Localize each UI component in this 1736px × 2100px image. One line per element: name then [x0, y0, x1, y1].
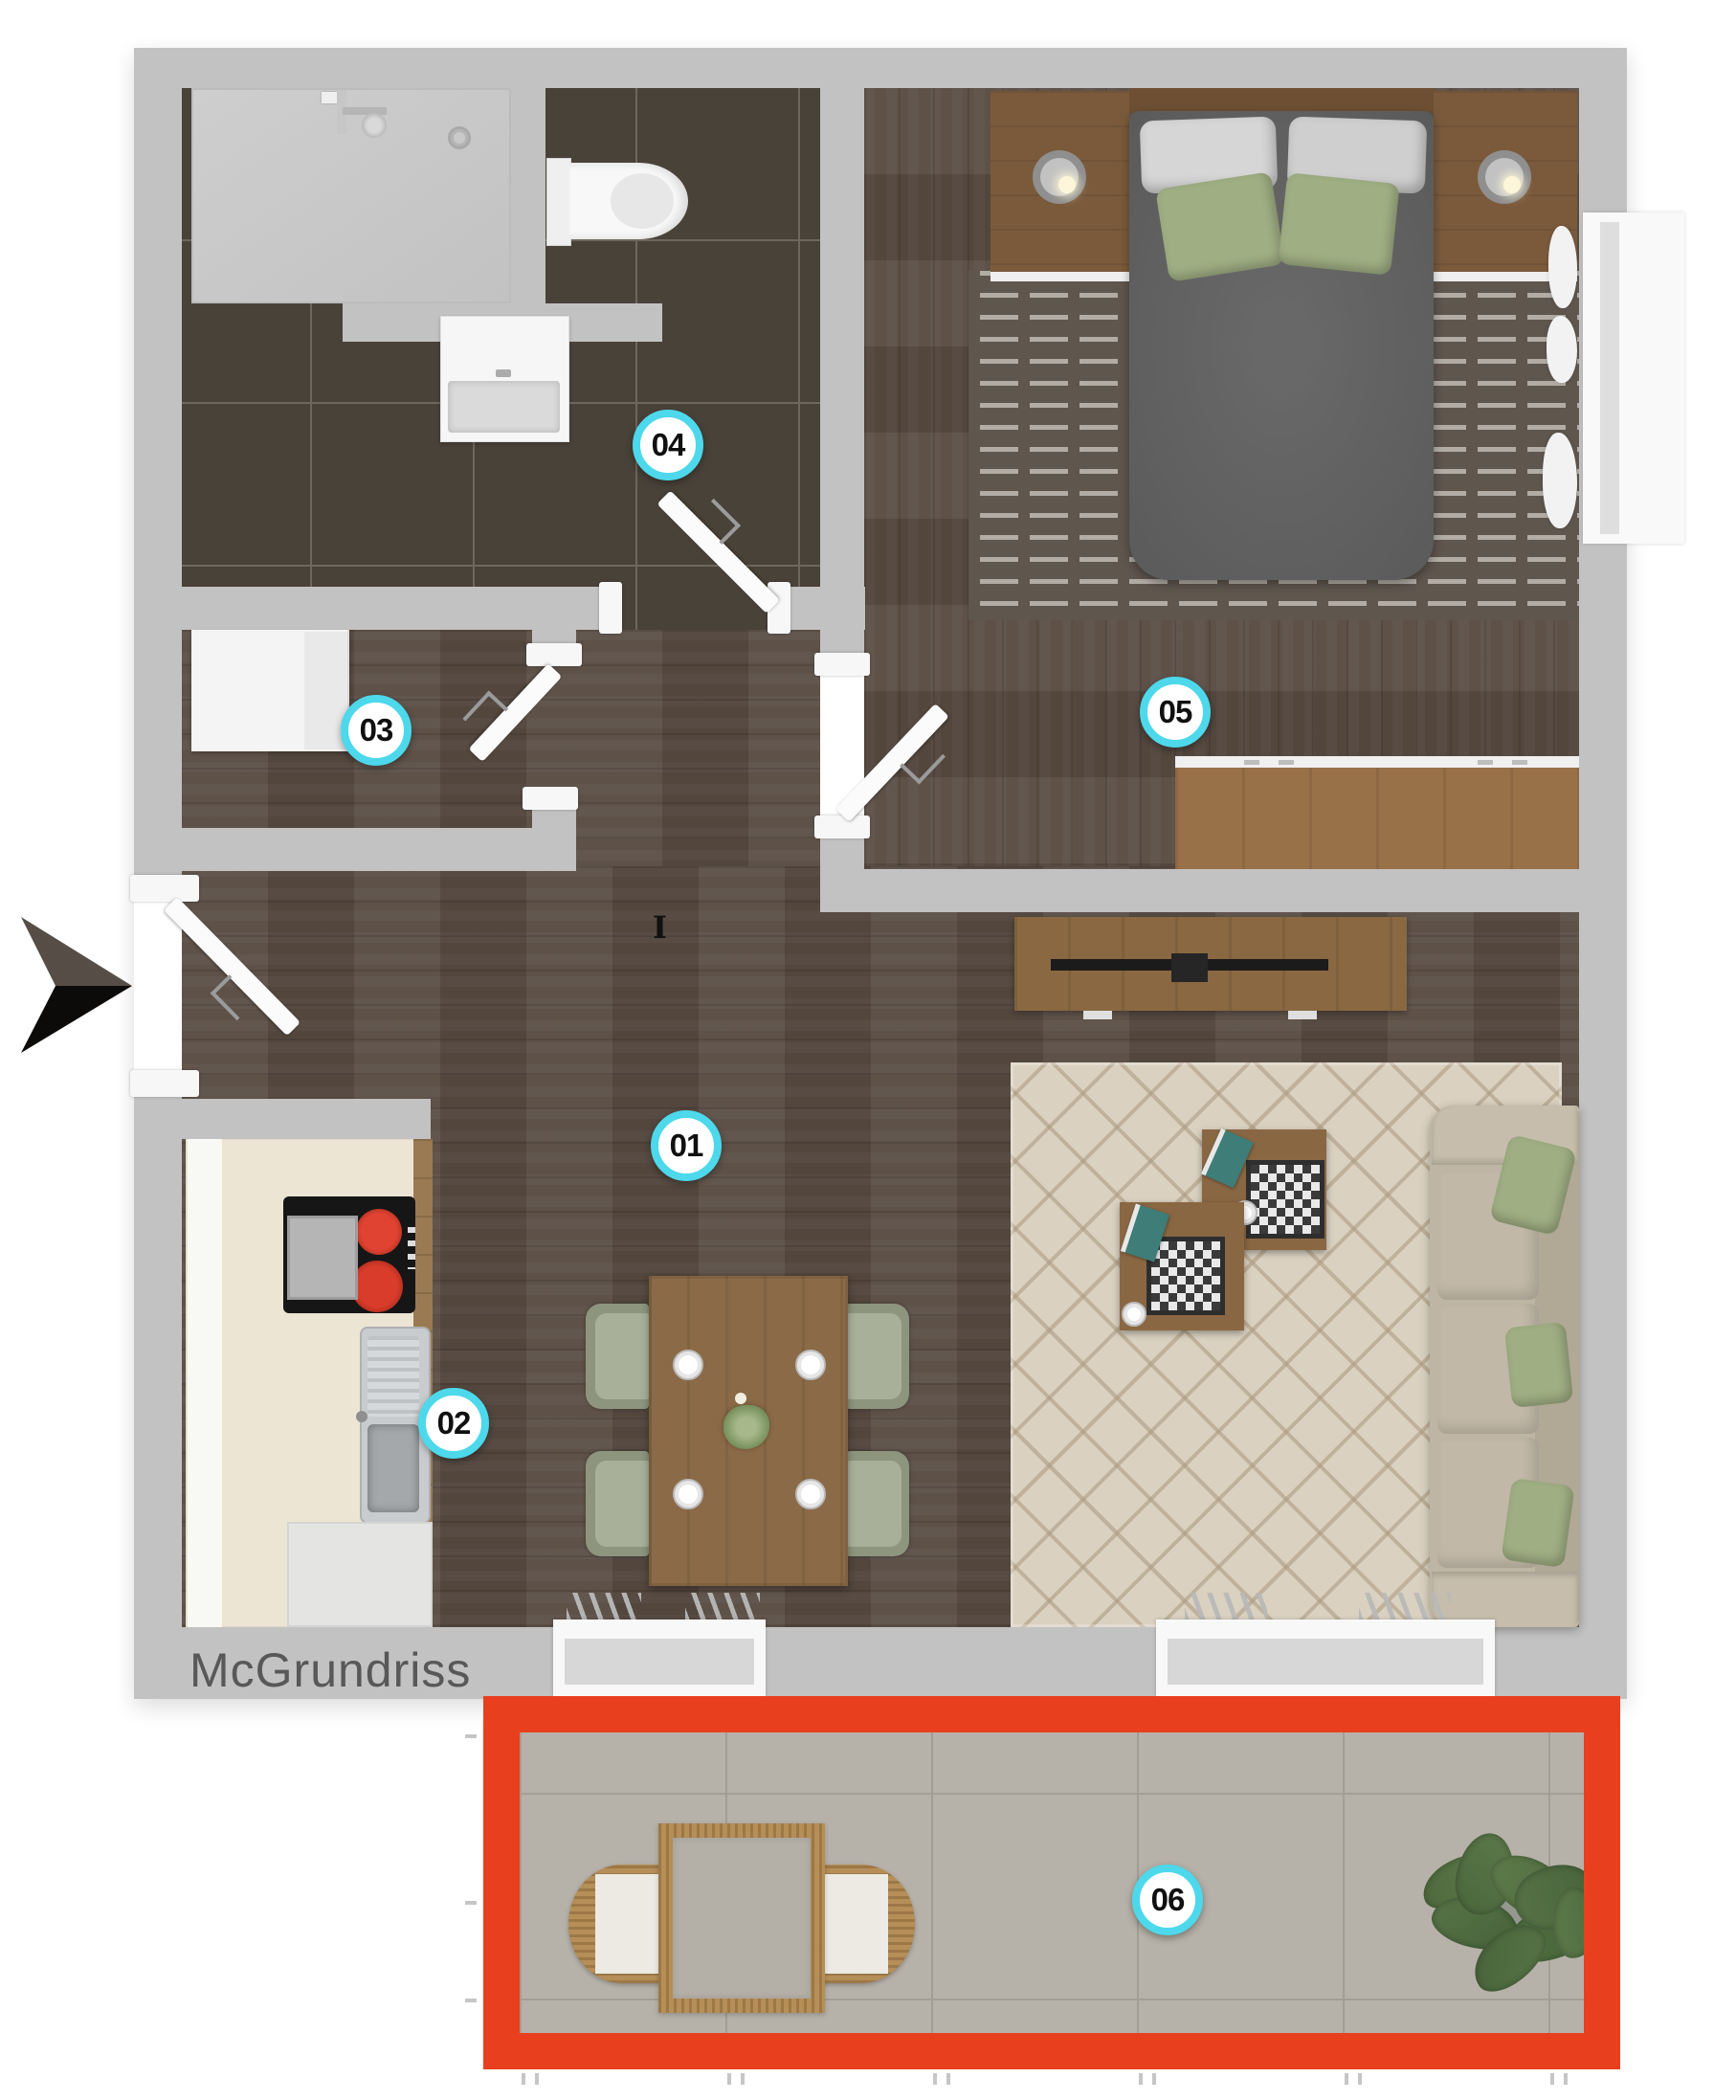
- room-badge-03[interactable]: 03: [341, 695, 412, 766]
- room-badge-02[interactable]: 02: [418, 1388, 489, 1459]
- room-badge-04[interactable]: 04: [633, 410, 703, 480]
- watermark-text: McGrundriss: [189, 1642, 471, 1698]
- badge-label: 04: [652, 427, 685, 463]
- annotation-mark: I: [653, 909, 667, 946]
- floorplan-canvas: I McGrundriss 010203040506: [0, 0, 1736, 2100]
- badge-label: 06: [1151, 1882, 1185, 1918]
- badge-label: 05: [1159, 694, 1192, 730]
- badge-label: 02: [437, 1405, 471, 1441]
- badge-label: 01: [670, 1128, 703, 1164]
- terrace-highlight-box: [483, 1696, 1620, 2069]
- room-badge-01[interactable]: 01: [651, 1110, 722, 1181]
- badge-label: 03: [360, 712, 393, 748]
- room-badge-06[interactable]: 06: [1132, 1865, 1203, 1935]
- room-badge-05[interactable]: 05: [1140, 677, 1211, 748]
